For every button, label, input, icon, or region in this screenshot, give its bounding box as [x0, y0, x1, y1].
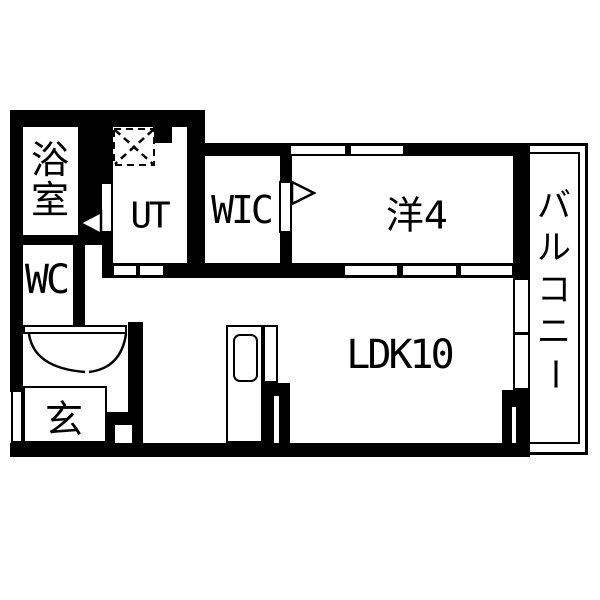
north-window-2: [349, 144, 405, 156]
wall-below-bath: [10, 235, 78, 245]
room-label-entrance: 玄: [45, 389, 83, 444]
floor-plan: 浴室 WC UT WIC 洋4 バルコニー 玄 LDK10: [0, 0, 600, 600]
wall-wc-right: [73, 245, 85, 325]
washing-machine-area-icon: [113, 128, 155, 166]
entrance-door-recess: [11, 390, 23, 443]
wall-ut-left-stub: [102, 245, 113, 265]
bathroom-door-swing-icon: [78, 209, 103, 237]
room-label-ldk: LDK10: [346, 332, 451, 378]
balcony-outer-rail-right: [585, 143, 588, 455]
room-label-balcony: バルコニー: [537, 185, 571, 395]
room-label-western-room: 洋4: [386, 185, 448, 240]
ut-sliding-door-1: [112, 264, 138, 277]
balcony-outer-rail-top: [530, 143, 588, 146]
entrance-closet-door-arcs-icon: [23, 332, 133, 376]
kitchen-side-counter: [263, 325, 278, 383]
wall-hatch-stub: [153, 127, 172, 143]
wall-ut-wic: [187, 110, 205, 263]
balcony-window-1: [513, 278, 530, 334]
north-window-1: [289, 144, 347, 156]
entrance-step-notch: [115, 425, 132, 443]
wall-right-lower: [502, 390, 530, 443]
right-wall-slit: [512, 407, 516, 443]
balcony-window-2: [513, 333, 530, 390]
partition-sliding-door-1: [343, 264, 399, 277]
wic-door-swing-icon: [290, 179, 316, 207]
wall-top-left: [10, 110, 200, 127]
room-label-utility: UT: [130, 196, 167, 237]
room-label-toilet: WC: [25, 257, 67, 303]
room-label-wic: WIC: [211, 188, 271, 232]
balcony-outer-rail-bottom: [530, 452, 588, 455]
ut-sliding-door-2: [138, 264, 165, 277]
partition-sliding-door-2: [401, 264, 458, 277]
partition-sliding-door-3: [459, 264, 514, 277]
kitchen-sink: [233, 334, 258, 382]
wall-left-outer: [10, 110, 23, 392]
room-label-bathroom: 浴室: [31, 140, 69, 220]
kitchen-wall-slit: [274, 396, 279, 443]
wall-bottom: [10, 443, 530, 457]
